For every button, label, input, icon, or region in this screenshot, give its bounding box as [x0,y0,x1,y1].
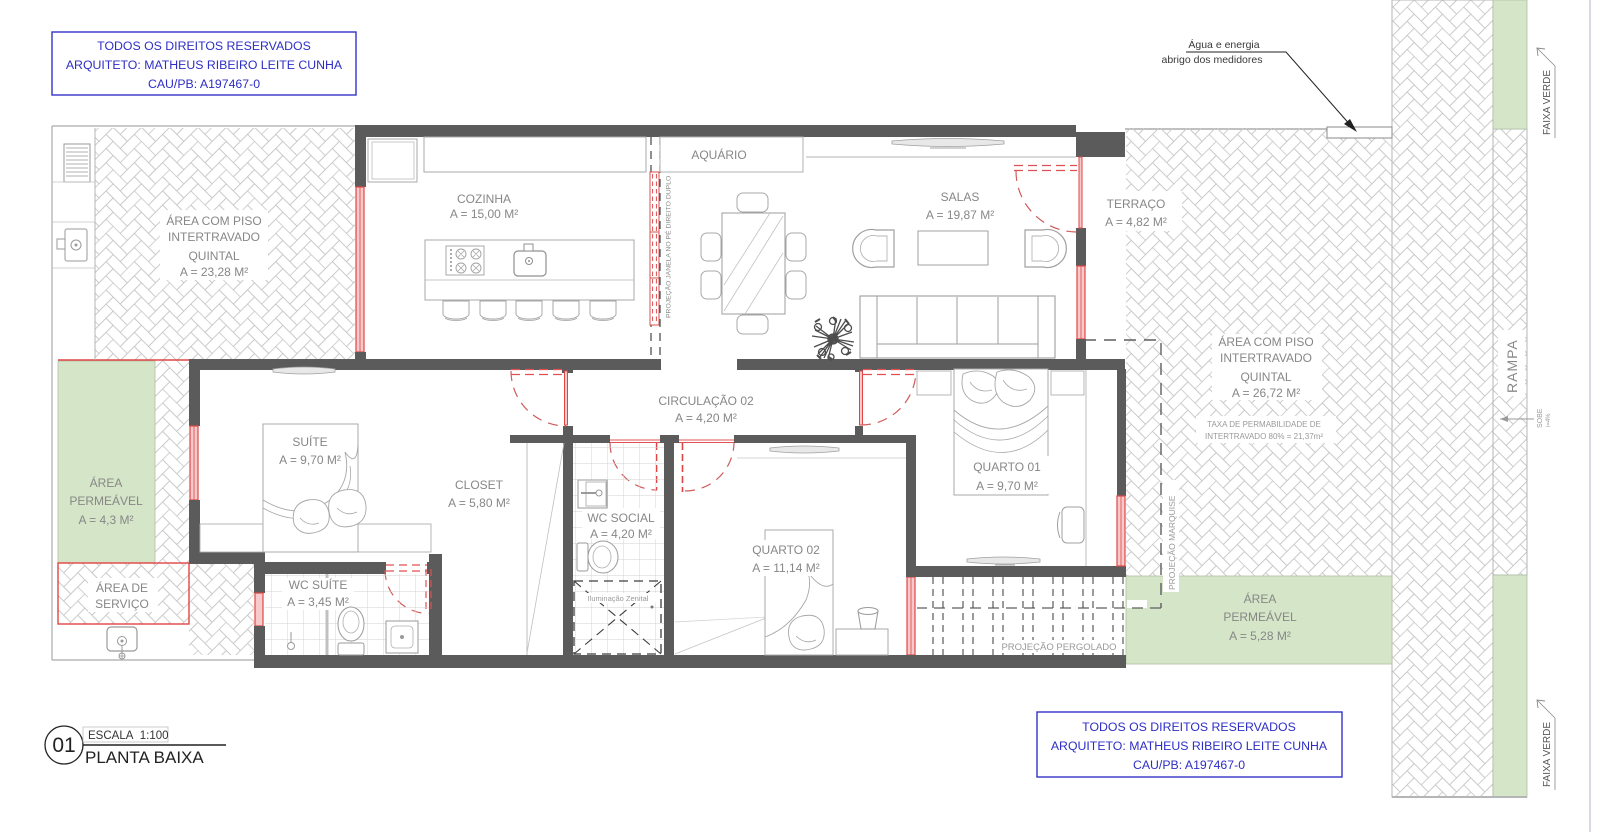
svg-text:A = 4,82 M²: A = 4,82 M² [1105,215,1167,229]
svg-text:ARQUITETO: MATHEUS RIBEIRO LEI: ARQUITETO: MATHEUS RIBEIRO LEITE CUNHA [1051,739,1328,753]
svg-text:CAU/PB: A197467-0: CAU/PB: A197467-0 [148,77,260,91]
svg-text:INTERTRAVADO: INTERTRAVADO [168,230,260,244]
svg-text:SALAS: SALAS [941,190,980,204]
svg-text:CLOSET: CLOSET [455,478,504,492]
svg-text:RAMPA: RAMPA [1504,339,1520,393]
svg-text:QUARTO 01: QUARTO 01 [973,460,1041,474]
svg-text:i=4%: i=4% [1546,413,1552,427]
svg-text:PERMEÁVEL: PERMEÁVEL [1223,609,1297,624]
svg-text:ARQUITETO: MATHEUS RIBEIRO LEI: ARQUITETO: MATHEUS RIBEIRO LEITE CUNHA [66,58,343,72]
svg-text:PERMEÁVEL: PERMEÁVEL [69,493,143,508]
svg-text:CAU/PB: A197467-0: CAU/PB: A197467-0 [1133,758,1245,772]
svg-text:abrigo dos medidores: abrigo dos medidores [1162,54,1263,66]
svg-text:ÁREA DE: ÁREA DE [96,580,148,595]
svg-text:A = 4,3 M²: A = 4,3 M² [78,513,133,527]
svg-text:FAIXA VERDE: FAIXA VERDE [1542,722,1553,787]
svg-text:A = 23,28 M²: A = 23,28 M² [180,265,248,279]
svg-text:QUINTAL: QUINTAL [188,249,239,263]
svg-text:A = 5,80 M²: A = 5,80 M² [448,496,510,510]
svg-text:INTERTRAVADO 80% = 21,37m²: INTERTRAVADO 80% = 21,37m² [1205,432,1323,441]
svg-text:A = 9,70 M²: A = 9,70 M² [976,479,1038,493]
svg-text:CIRCULAÇÃO 02: CIRCULAÇÃO 02 [658,394,754,408]
svg-text:ÁREA: ÁREA [90,475,123,490]
svg-text:TODOS OS DIREITOS RESERVADOS: TODOS OS DIREITOS RESERVADOS [1082,720,1296,734]
svg-text:WC SUÍTE: WC SUÍTE [289,577,348,592]
svg-text:ESCALA 1:100: ESCALA 1:100 [88,730,169,742]
svg-text:ÁREA COM PISO: ÁREA COM PISO [166,213,261,228]
svg-text:A = 5,28 M²: A = 5,28 M² [1229,629,1291,643]
svg-text:SUÍTE: SUÍTE [292,434,327,449]
svg-text:A = 11,14 M²: A = 11,14 M² [752,561,819,575]
svg-text:INTERTRAVADO: INTERTRAVADO [1220,351,1312,365]
svg-text:PROJEÇÃO PERGOLADO: PROJEÇÃO PERGOLADO [1001,642,1116,653]
svg-text:PROJEÇÃO JANELA NO PÉ DIREITO: PROJEÇÃO JANELA NO PÉ DIREITO DUPLO [664,176,673,318]
svg-text:FAIXA VERDE: FAIXA VERDE [1542,70,1553,135]
svg-text:TODOS OS DIREITOS RESERVADOS: TODOS OS DIREITOS RESERVADOS [97,39,311,53]
svg-text:QUARTO 02: QUARTO 02 [752,543,820,557]
svg-text:A = 4,20 M²: A = 4,20 M² [590,527,652,541]
svg-text:ÁREA: ÁREA [1244,591,1277,606]
svg-text:COZINHA: COZINHA [457,192,511,206]
svg-text:ÁREA COM PISO: ÁREA COM PISO [1218,334,1313,349]
svg-text:PLANTA BAIXA: PLANTA BAIXA [85,748,204,767]
svg-text:01: 01 [52,734,75,757]
svg-text:A = 9,70 M²: A = 9,70 M² [279,453,341,467]
svg-text:Água e energia: Água e energia [1188,38,1259,51]
svg-text:TAXA DE PERMABILIDADE DE: TAXA DE PERMABILIDADE DE [1207,420,1321,429]
svg-text:Iluminação Zenital: Iluminação Zenital [588,594,649,603]
svg-text:PROJEÇÃO MARQUISE: PROJEÇÃO MARQUISE [1167,495,1177,590]
svg-text:AQUÁRIO: AQUÁRIO [691,147,746,162]
svg-text:A = 19,87 M²: A = 19,87 M² [926,208,994,222]
svg-text:A = 15,00 M²: A = 15,00 M² [450,207,518,221]
svg-text:SOBE: SOBE [1537,408,1544,428]
svg-text:QUINTAL: QUINTAL [1240,370,1291,384]
svg-text:A = 4,20 M²: A = 4,20 M² [675,411,737,425]
svg-text:A = 26,72 M²: A = 26,72 M² [1232,386,1300,400]
svg-text:WC SOCIAL: WC SOCIAL [587,511,655,525]
svg-text:A = 3,45 M²: A = 3,45 M² [287,595,349,609]
svg-text:TERRAÇO: TERRAÇO [1107,197,1166,211]
svg-text:SERVIÇO: SERVIÇO [95,597,149,611]
